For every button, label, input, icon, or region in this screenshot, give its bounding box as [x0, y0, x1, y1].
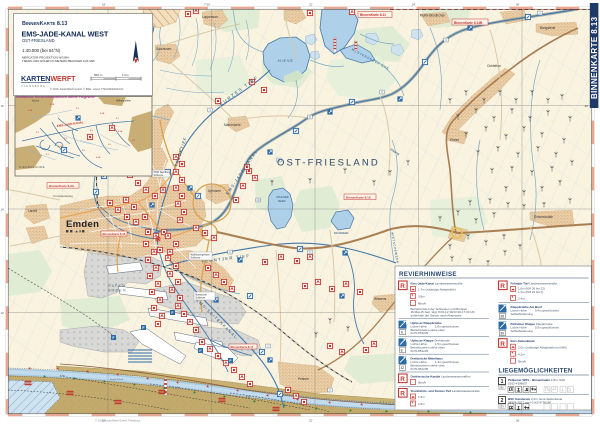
svg-text:F: F	[142, 326, 144, 330]
svg-text:BinnenKarte 8.16: BinnenKarte 8.16	[346, 195, 371, 199]
svg-text:5km/h: 5km/h	[518, 359, 527, 363]
svg-text:Emder Fahrw.: Emder Fahrw.	[110, 378, 124, 381]
svg-text:2: 2	[501, 398, 504, 404]
svg-text:8,9B: 8,9B	[50, 104, 55, 106]
svg-text:8,6A: 8,6A	[118, 130, 123, 133]
svg-text:Loppersum: Loppersum	[202, 15, 218, 19]
svg-text:Constantiaweg: Constantiaweg	[53, 194, 73, 198]
svg-text:1,3m (KM 21 bis 0): 1,3m (KM 21 bis 0)	[518, 290, 543, 294]
svg-text:Bangstede: Bangstede	[540, 26, 555, 30]
svg-text:12': 12'	[1, 311, 5, 315]
svg-text:Ochtelbur: Ochtelbur	[487, 64, 502, 68]
svg-text:Fehntjer Tief Landeswasserstra: Fehntjer Tief Landeswasserstraße	[511, 282, 558, 286]
svg-text:R: R	[400, 376, 405, 383]
svg-text:Schleuse: Schleuse	[191, 256, 202, 259]
svg-text:Knock: Knock	[32, 100, 40, 103]
svg-text:28: 28	[500, 315, 504, 319]
svg-text:1 km: 1 km	[122, 73, 129, 77]
svg-text:18': 18'	[102, 3, 106, 7]
svg-text:MEER: MEER	[278, 199, 286, 203]
svg-text:UPHUSER: UPHUSER	[276, 195, 289, 199]
svg-text:239: 239	[499, 404, 504, 408]
svg-text:8: 8	[401, 348, 403, 352]
svg-text:Eheze: Eheze	[450, 138, 459, 142]
svg-text:außerhalb der Saison nach Absp: außerhalb der Saison nach Absprache	[411, 314, 462, 318]
svg-text:BANSMEER: BANSMEER	[334, 231, 349, 235]
svg-text:14': 14'	[1, 208, 5, 212]
svg-text:8,9A: 8,9A	[100, 112, 105, 115]
svg-text:5km/h: 5km/h	[418, 381, 427, 385]
svg-text:1: 1	[501, 379, 504, 385]
svg-text:Petkum: Petkum	[298, 377, 309, 381]
svg-text:Ostfriesische Kanäle Landeswas: Ostfriesische Kanäle Landeswasserstraßen	[411, 375, 471, 379]
svg-text:22': 22'	[309, 3, 313, 7]
svg-text:Simonswolde: Simonswolde	[534, 215, 553, 219]
svg-text:F: F	[112, 336, 114, 340]
svg-text:Schleuse: Schleuse	[196, 296, 207, 299]
svg-text:KARTENWERFT: KARTENWERFT	[21, 74, 76, 83]
svg-text:OST-FRIESLAND: OST-FRIESLAND	[22, 38, 55, 43]
svg-text:R: R	[400, 391, 405, 398]
svg-text:FLENSBURG: FLENSBURG	[22, 85, 47, 88]
svg-text:Wilhelmsfehn: Wilhelmsfehn	[116, 100, 132, 103]
svg-text:R: R	[500, 341, 505, 348]
svg-text:Ems-Seitenkanal: Ems-Seitenkanal	[511, 339, 535, 343]
svg-text:EMDEN: EMDEN	[108, 289, 127, 293]
svg-text:26': 26'	[516, 3, 520, 7]
svg-text:2,4m: 2,4m	[518, 297, 525, 301]
svg-text:0162-4308657: 0162-4308657	[508, 382, 528, 386]
svg-text:BinnenKarte 8.17: BinnenKarte 8.17	[231, 345, 254, 349]
svg-text:2,5m: 2,5m	[418, 402, 425, 406]
svg-text:1:40.000 (bei 54°N): 1:40.000 (bei 54°N)	[22, 48, 61, 53]
svg-text:260: 260	[499, 385, 504, 389]
svg-text:14': 14'	[585, 104, 589, 108]
svg-text:1,5m: 1,5m	[418, 395, 425, 399]
svg-text:REVIERHINWEISE: REVIERHINWEISE	[399, 271, 457, 278]
svg-text:0170-851235: 0170-851235	[411, 367, 429, 371]
svg-text:8,4A: 8,4A	[96, 156, 101, 159]
svg-text:HIEVE: HIEVE	[278, 59, 294, 63]
svg-text:Treckfahrts- und Kurzes Tief L: Treckfahrts- und Kurzes Tief Landeswasse…	[411, 389, 480, 393]
svg-text:24': 24'	[412, 3, 416, 7]
svg-text:7°20': 7°20'	[204, 3, 211, 7]
svg-text:Marienwehr: Marienwehr	[224, 123, 242, 127]
svg-text:0170-851235: 0170-851235	[411, 349, 429, 353]
svg-text:BinnenKarte 8.11: BinnenKarte 8.11	[360, 13, 386, 17]
svg-text:HAFEN: HAFEN	[108, 284, 126, 288]
svg-text:Emden: Emden	[66, 219, 99, 230]
svg-text:16': 16'	[1, 104, 5, 108]
svg-text:© 2016, KartenWerft GmbH, © BS: © 2016, KartenWerft GmbH, © BSH, Lizenz …	[50, 87, 124, 91]
svg-text:12: 12	[400, 366, 404, 370]
svg-text:BinnenKarte 8.15: BinnenKarte 8.15	[103, 232, 126, 236]
svg-text:2,0m (zulässige Abladetiefe be: 2,0m (zulässige Abladetiefe bei MW)	[518, 345, 567, 349]
svg-text:Larrelt: Larrelt	[28, 209, 37, 213]
svg-text:8,9A: 8,9A	[28, 109, 33, 112]
svg-text:© 2016, KartenWerft GmbH, Flen: © 2016, KartenWerft GmbH, Flensburg	[95, 419, 140, 423]
svg-text:Suurhusen: Suurhusen	[156, 47, 172, 51]
svg-text:LIEGEMÖGLICHKEITEN: LIEGEMÖGLICHKEITEN	[499, 368, 573, 375]
svg-text:BINNENKARTE 8.13: BINNENKARTE 8.13	[590, 16, 599, 99]
svg-text:Fiulfix-Bliudirchen: Fiulfix-Bliudirchen	[420, 14, 445, 18]
svg-text:F: F	[229, 359, 231, 363]
svg-text:26': 26'	[516, 419, 520, 423]
svg-text:TIEFEN UND HÖHEN IN METERN BEZ: TIEFEN UND HÖHEN IN METERN BEZOGEN AUF M…	[22, 59, 95, 63]
svg-text:BinnenKarte 8.14B: BinnenKarte 8.14B	[454, 21, 483, 25]
svg-text:8km/h: 8km/h	[418, 302, 427, 306]
svg-text:0170-851235: 0170-851235	[411, 331, 429, 335]
svg-text:F: F	[199, 349, 201, 353]
svg-text:NIEDERLANDE: NIEDERLANDE	[19, 165, 45, 169]
svg-text:500 m: 500 m	[94, 73, 103, 77]
svg-text:BinnenKarte 8.9A: BinnenKarte 8.9A	[49, 184, 75, 188]
svg-text:Selbstbedienung: Selbstbedienung	[511, 329, 534, 333]
svg-text:4,5m: 4,5m	[60, 375, 65, 377]
svg-text:22': 22'	[309, 419, 313, 423]
svg-text:Uphusen: Uphusen	[208, 189, 221, 193]
svg-text:Ems-Jade-Kanal Landeswasserstr: Ems-Jade-Kanal Landeswasserstraße	[411, 282, 463, 286]
svg-text:OST-FRIESLAND: OST-FRIESLAND	[277, 158, 380, 169]
svg-text:4,2m: 4,2m	[518, 352, 525, 356]
svg-text:1,7m (zulässige Abladetiefe): 1,7m (zulässige Abladetiefe)	[418, 288, 456, 292]
svg-text:R: R	[500, 283, 505, 290]
svg-text:3,8m: 3,8m	[418, 295, 425, 299]
svg-text:Selbstbedienung: Selbstbedienung	[511, 312, 534, 316]
svg-text:Wiesens: Wiesens	[374, 297, 387, 301]
svg-text:F: F	[171, 311, 173, 315]
svg-text:R: R	[400, 283, 405, 290]
svg-text:30: 30	[500, 332, 504, 336]
svg-text:6: 6	[401, 331, 403, 335]
svg-text:Schleuse: Schleuse	[154, 174, 165, 177]
